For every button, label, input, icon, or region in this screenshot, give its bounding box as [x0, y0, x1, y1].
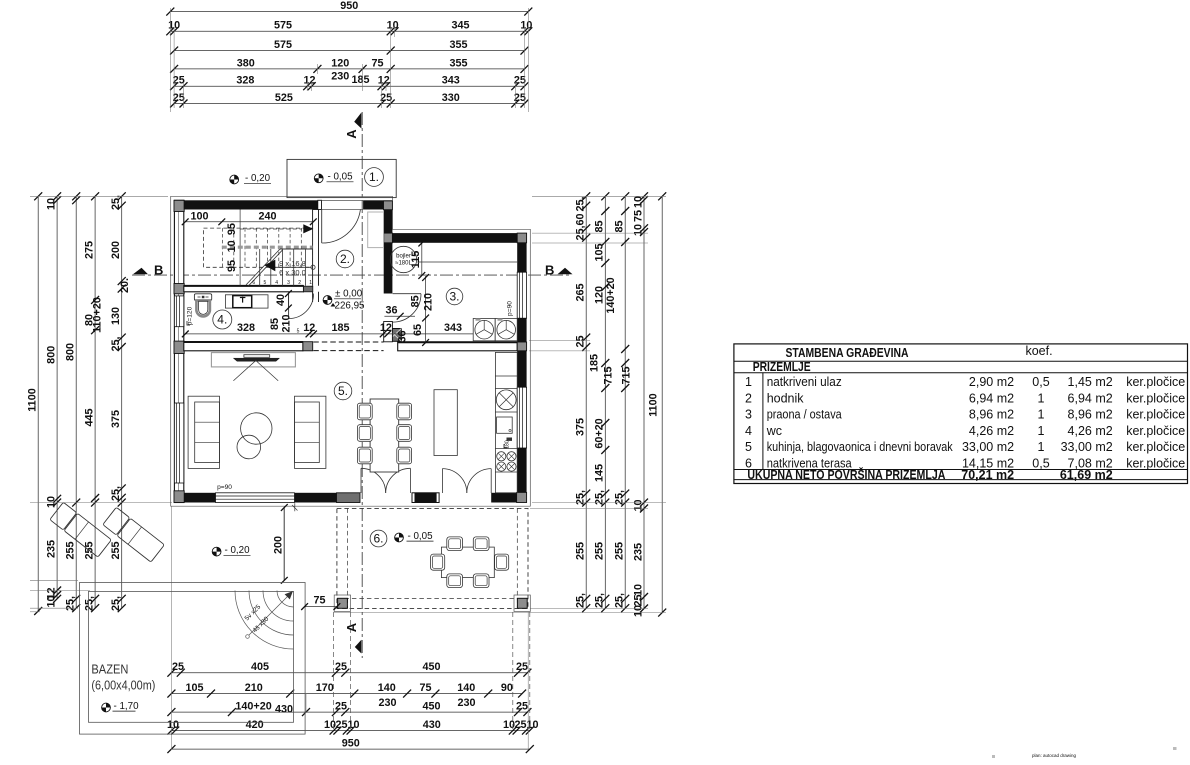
svg-text:85: 85 — [594, 220, 606, 232]
svg-text:25: 25 — [173, 75, 185, 87]
svg-text:715: 715 — [602, 366, 614, 384]
svg-text:12: 12 — [303, 322, 315, 334]
svg-text:praona / ostava: praona / ostava — [767, 408, 842, 422]
svg-text:1100: 1100 — [27, 388, 39, 411]
svg-text:20.: 20. — [119, 278, 131, 293]
svg-text:230: 230 — [457, 697, 475, 709]
svg-text:240: 240 — [258, 210, 276, 222]
svg-text:405: 405 — [251, 661, 269, 673]
svg-text:800: 800 — [65, 343, 77, 361]
svg-text:- 0,05: - 0,05 — [328, 172, 354, 183]
svg-text:60+20: 60+20 — [594, 418, 606, 448]
svg-text:8,96 m2: 8,96 m2 — [1068, 408, 1113, 422]
svg-text:75: 75 — [313, 595, 325, 607]
svg-text:450: 450 — [422, 701, 440, 713]
svg-text:375: 375 — [110, 410, 122, 428]
svg-text:natkriveni ulaz: natkriveni ulaz — [767, 375, 842, 389]
svg-text:kuhinja, blagovaonica i dnevni: kuhinja, blagovaonica i dnevni boravak — [767, 440, 954, 454]
svg-text:330: 330 — [442, 92, 460, 104]
svg-text:ker.pločice: ker.pločice — [1126, 375, 1185, 389]
svg-text:10: 10 — [46, 198, 58, 210]
svg-text:85: 85 — [269, 318, 281, 330]
svg-text:40: 40 — [275, 294, 287, 306]
svg-text:95: 95 — [226, 260, 238, 272]
svg-text:ker.pločice: ker.pločice — [1126, 456, 1185, 470]
svg-text:255: 255 — [614, 542, 626, 560]
svg-text:6: 6 — [252, 280, 255, 286]
svg-text:25,: 25, — [65, 596, 77, 611]
svg-text:25,: 25, — [110, 195, 122, 210]
svg-text:12: 12 — [378, 75, 390, 87]
svg-text:10: 10 — [503, 719, 515, 731]
svg-text:75: 75 — [419, 682, 431, 694]
svg-text:120: 120 — [594, 286, 606, 304]
svg-text:2: 2 — [298, 280, 301, 286]
svg-text:wc: wc — [766, 424, 782, 438]
svg-text:5: 5 — [297, 329, 300, 335]
svg-text:105: 105 — [594, 243, 606, 261]
svg-text:p=120: p=120 — [187, 306, 194, 325]
svg-text:140+20: 140+20 — [235, 701, 271, 713]
svg-text:230: 230 — [378, 697, 396, 709]
svg-text:375: 375 — [575, 418, 587, 436]
svg-text:33,00 m2: 33,00 m2 — [962, 440, 1014, 454]
svg-text:450: 450 — [422, 661, 440, 673]
svg-text:9 x 16,8: 9 x 16,8 — [279, 259, 306, 268]
svg-text:25,: 25, — [110, 596, 122, 611]
svg-text:140: 140 — [457, 682, 475, 694]
svg-text:25,60: 25,60 — [575, 213, 587, 240]
svg-text:5: 5 — [264, 280, 267, 286]
svg-text:10: 10 — [632, 499, 644, 511]
svg-text:255: 255 — [594, 542, 606, 560]
svg-text:koef.: koef. — [1025, 344, 1052, 358]
svg-text:ker.pločice: ker.pločice — [1126, 440, 1185, 454]
svg-text:420: 420 — [246, 719, 264, 731]
svg-text:185: 185 — [589, 354, 601, 372]
svg-text:25,: 25, — [110, 336, 122, 351]
svg-text:- 0,20: - 0,20 — [225, 545, 251, 556]
svg-text:25: 25 — [173, 92, 185, 104]
svg-text:10: 10 — [226, 240, 238, 252]
svg-text:ker.pločice: ker.pločice — [1126, 391, 1185, 405]
svg-text:1,45 m2: 1,45 m2 — [1068, 375, 1113, 389]
svg-text:1: 1 — [1038, 391, 1045, 405]
svg-text:75: 75 — [632, 210, 644, 222]
svg-text:10: 10 — [46, 595, 58, 607]
svg-text:B: B — [545, 263, 554, 278]
svg-text:4: 4 — [275, 280, 278, 286]
svg-text:± 0,00: ± 0,00 — [335, 289, 363, 300]
svg-text:328: 328 — [237, 322, 255, 334]
svg-text:25: 25 — [335, 661, 347, 673]
svg-text:65: 65 — [412, 324, 424, 336]
svg-text:715: 715 — [621, 366, 633, 384]
svg-text:255: 255 — [575, 542, 587, 560]
svg-text:445: 445 — [84, 408, 96, 426]
svg-text:1.: 1. — [369, 170, 379, 184]
svg-text:85: 85 — [409, 295, 421, 307]
svg-text:140: 140 — [378, 682, 396, 694]
svg-text:200: 200 — [110, 241, 122, 259]
svg-text:100: 100 — [190, 210, 208, 222]
svg-text:0,5: 0,5 — [1032, 375, 1049, 389]
svg-text:3: 3 — [287, 280, 290, 286]
svg-text:70,21 m2: 70,21 m2 — [961, 468, 1014, 482]
svg-text:25,: 25, — [575, 593, 587, 608]
svg-text:328: 328 — [236, 75, 254, 87]
svg-text:61,69 m2: 61,69 m2 — [1060, 468, 1113, 482]
svg-text:210: 210 — [245, 682, 263, 694]
svg-text:10: 10 — [46, 496, 58, 508]
svg-text:p=90: p=90 — [217, 484, 232, 491]
svg-text:343: 343 — [442, 75, 460, 87]
svg-text:(6,00x4,00m): (6,00x4,00m) — [91, 678, 155, 693]
svg-text:3: 3 — [745, 408, 752, 422]
svg-text:4.: 4. — [217, 313, 227, 327]
svg-text:200: 200 — [273, 536, 285, 554]
svg-text:525: 525 — [275, 92, 293, 104]
svg-text:10: 10 — [324, 719, 336, 731]
svg-text:235: 235 — [46, 540, 58, 558]
svg-text:355: 355 — [449, 39, 467, 51]
svg-text:265: 265 — [575, 283, 587, 301]
svg-text:6 x 30,0: 6 x 30,0 — [279, 268, 306, 277]
svg-text:25: 25 — [514, 92, 526, 104]
svg-text:- 0,05: - 0,05 — [408, 531, 434, 542]
svg-text:ker.pločice: ker.pločice — [1126, 424, 1185, 438]
svg-text:255: 255 — [65, 541, 77, 559]
svg-text:25,: 25, — [110, 486, 122, 501]
svg-text:36: 36 — [385, 305, 397, 317]
svg-text:25: 25 — [380, 92, 392, 104]
svg-text:A: A — [344, 129, 359, 139]
svg-text:8,96 m2: 8,96 m2 — [969, 408, 1014, 422]
svg-text:2,90 m2: 2,90 m2 — [969, 375, 1014, 389]
svg-text:185: 185 — [351, 74, 369, 86]
svg-text:275: 275 — [84, 241, 96, 259]
svg-text:2: 2 — [745, 391, 752, 405]
svg-text:10: 10 — [520, 20, 532, 32]
svg-text:bojler: bojler — [396, 254, 411, 260]
svg-text:6,94 m2: 6,94 m2 — [1068, 391, 1113, 405]
svg-text:105: 105 — [185, 682, 203, 694]
svg-text:1: 1 — [1038, 424, 1045, 438]
svg-text:25,: 25, — [84, 596, 96, 611]
svg-text:10: 10 — [632, 196, 644, 208]
svg-text:355: 355 — [449, 57, 467, 69]
svg-text:110+20: 110+20 — [92, 297, 104, 333]
svg-text:90: 90 — [501, 682, 513, 694]
svg-text:BAZEN: BAZEN — [91, 662, 128, 677]
svg-text:- 1,70: - 1,70 — [114, 701, 140, 712]
svg-text:95: 95 — [226, 223, 238, 235]
svg-text:25: 25 — [632, 594, 644, 606]
svg-text:343: 343 — [444, 322, 462, 334]
svg-text:85: 85 — [614, 220, 626, 232]
svg-text:- 0,20: - 0,20 — [245, 173, 271, 184]
svg-text:115: 115 — [410, 251, 422, 268]
svg-text:ker.pločice: ker.pločice — [1126, 408, 1185, 422]
svg-text:6.: 6. — [373, 532, 383, 546]
svg-text:UKUPNA NETO POVRŠINA PRIZEMLJA: UKUPNA NETO POVRŠINA PRIZEMLJA — [747, 467, 945, 482]
svg-text:25,: 25, — [594, 593, 606, 608]
svg-text:210: 210 — [423, 293, 435, 311]
svg-text:PRIZEMLJE: PRIZEMLJE — [753, 360, 811, 374]
svg-text:33,00 m2: 33,00 m2 — [1061, 440, 1113, 454]
svg-text:1: 1 — [309, 280, 312, 286]
svg-text:230: 230 — [331, 71, 349, 83]
svg-text:25: 25 — [516, 661, 528, 673]
svg-text:950: 950 — [340, 0, 358, 12]
svg-text:B: B — [154, 263, 163, 278]
svg-text:25: 25 — [172, 661, 184, 673]
svg-text:210: 210 — [280, 314, 292, 332]
svg-text:575: 575 — [274, 20, 292, 32]
svg-text:1: 1 — [1038, 408, 1045, 422]
svg-text:235: 235 — [632, 543, 644, 561]
svg-text:4: 4 — [745, 424, 752, 438]
svg-text:1100: 1100 — [648, 393, 660, 416]
svg-text:345: 345 — [451, 20, 469, 32]
svg-text:75: 75 — [371, 57, 383, 69]
svg-text:130: 130 — [110, 307, 122, 325]
svg-text:800: 800 — [46, 346, 58, 364]
svg-text:10: 10 — [347, 719, 359, 731]
svg-text:5.: 5. — [338, 384, 348, 398]
svg-text:10: 10 — [632, 224, 644, 236]
svg-text:145: 145 — [594, 464, 606, 482]
svg-text:380: 380 — [237, 57, 255, 69]
svg-text:12: 12 — [380, 322, 392, 334]
svg-text:1: 1 — [745, 375, 752, 389]
svg-text:226,95: 226,95 — [335, 301, 366, 312]
svg-text:25: 25 — [335, 719, 347, 731]
svg-text:25,: 25, — [614, 593, 626, 608]
svg-text:5: 5 — [745, 440, 752, 454]
svg-text:25: 25 — [516, 701, 528, 713]
svg-text:6,94 m2: 6,94 m2 — [969, 391, 1014, 405]
svg-text:12: 12 — [303, 75, 315, 87]
svg-text:36: 36 — [397, 330, 409, 342]
svg-text:25: 25 — [514, 719, 526, 731]
svg-text:A: A — [344, 622, 359, 632]
svg-text:4,26 m2: 4,26 m2 — [969, 424, 1014, 438]
svg-text:575: 575 — [274, 39, 292, 51]
svg-text:950: 950 — [342, 738, 360, 750]
svg-text:10: 10 — [387, 20, 399, 32]
svg-text:430: 430 — [275, 704, 293, 716]
svg-text:140+20: 140+20 — [605, 277, 617, 313]
svg-text:25: 25 — [335, 701, 347, 713]
svg-text:10: 10 — [632, 584, 644, 596]
svg-text:4,26 m2: 4,26 m2 — [1068, 424, 1113, 438]
svg-text:180: 180 — [505, 440, 511, 449]
svg-text:170: 170 — [316, 682, 334, 694]
svg-text:430: 430 — [423, 719, 441, 731]
svg-text:10: 10 — [632, 605, 644, 617]
svg-text:25: 25 — [575, 335, 587, 347]
svg-text:25,: 25, — [575, 196, 587, 211]
svg-text:10: 10 — [167, 719, 179, 731]
svg-text:plan: autocad drawing: plan: autocad drawing — [1032, 753, 1077, 758]
svg-text:185: 185 — [331, 322, 349, 334]
svg-text:p=90: p=90 — [507, 301, 514, 316]
svg-text:3.: 3. — [449, 290, 459, 304]
svg-text:25: 25 — [514, 75, 526, 87]
svg-text:hodnik: hodnik — [767, 391, 805, 405]
svg-text:STAMBENA GRAĐEVINA: STAMBENA GRAĐEVINA — [786, 346, 909, 360]
svg-text:1: 1 — [1038, 440, 1045, 454]
svg-text:2.: 2. — [340, 252, 350, 266]
svg-text:0,5: 0,5 — [1032, 456, 1049, 470]
svg-text:120: 120 — [331, 57, 349, 69]
svg-text:255: 255 — [110, 541, 122, 559]
